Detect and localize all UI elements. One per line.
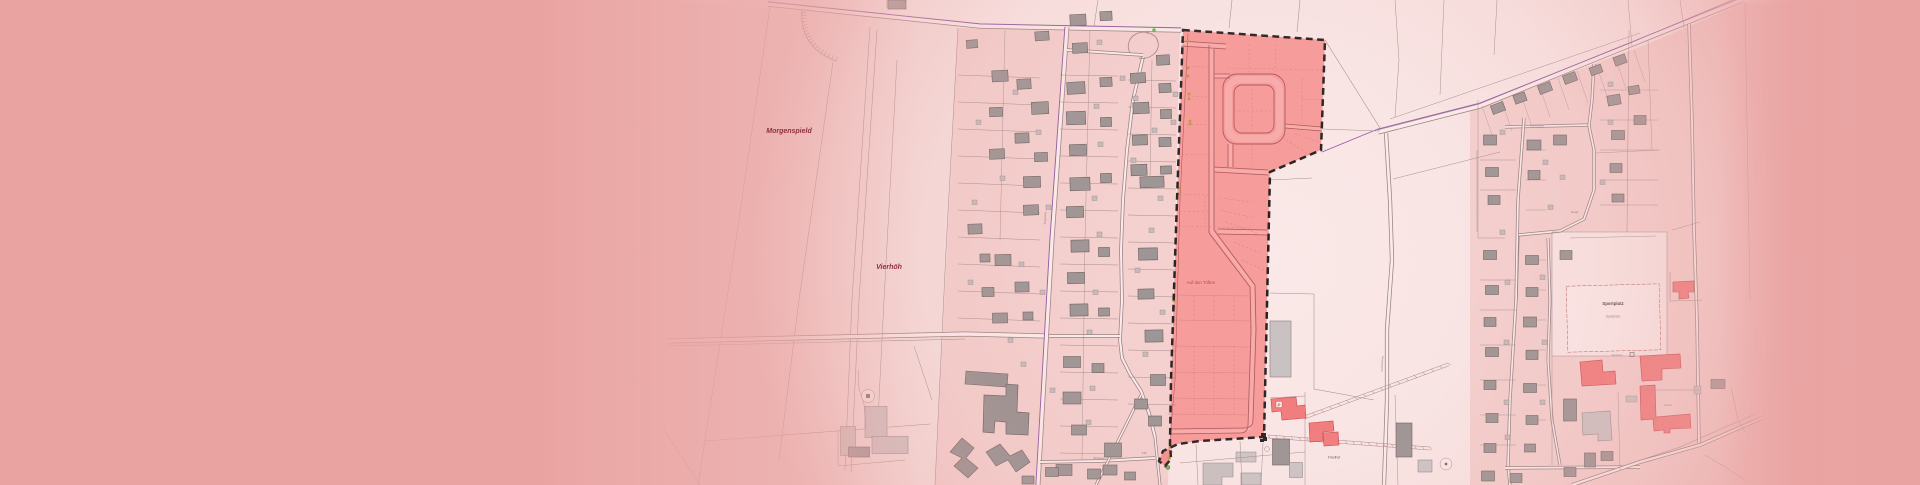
svg-text:Morgenspield: Morgenspield <box>766 128 812 135</box>
svg-text:Vierhöh: Vierhöh <box>876 264 902 271</box>
